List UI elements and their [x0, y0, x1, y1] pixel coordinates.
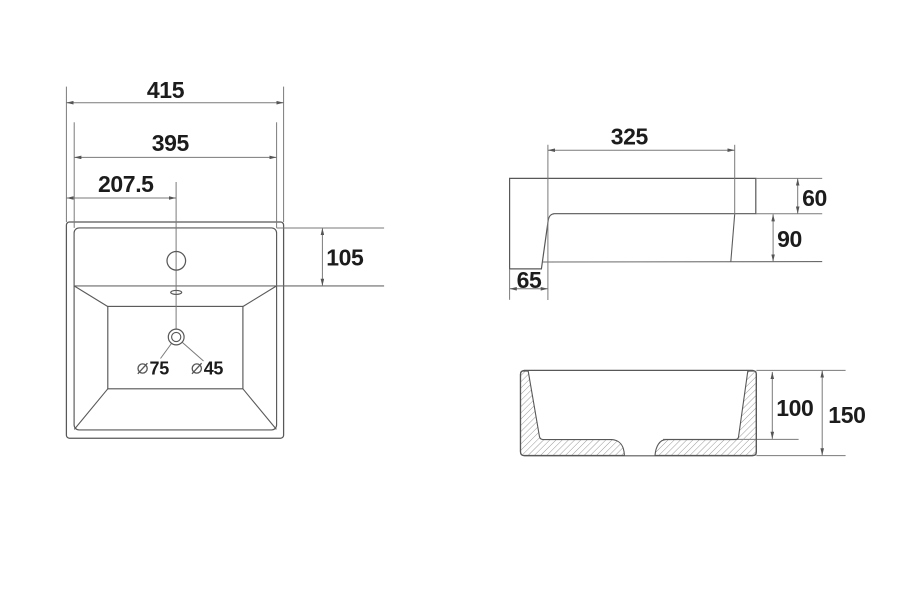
svg-text:65: 65 [517, 267, 542, 293]
svg-text:60: 60 [802, 185, 827, 211]
svg-text:45: 45 [204, 358, 224, 378]
svg-text:415: 415 [147, 77, 185, 103]
svg-text:75: 75 [150, 358, 170, 378]
svg-text:105: 105 [326, 244, 364, 270]
svg-text:325: 325 [611, 124, 649, 150]
svg-text:150: 150 [828, 402, 865, 428]
svg-text:207.5: 207.5 [98, 171, 154, 197]
svg-text:90: 90 [777, 226, 802, 252]
svg-text:100: 100 [776, 395, 813, 421]
svg-text:395: 395 [152, 130, 190, 156]
